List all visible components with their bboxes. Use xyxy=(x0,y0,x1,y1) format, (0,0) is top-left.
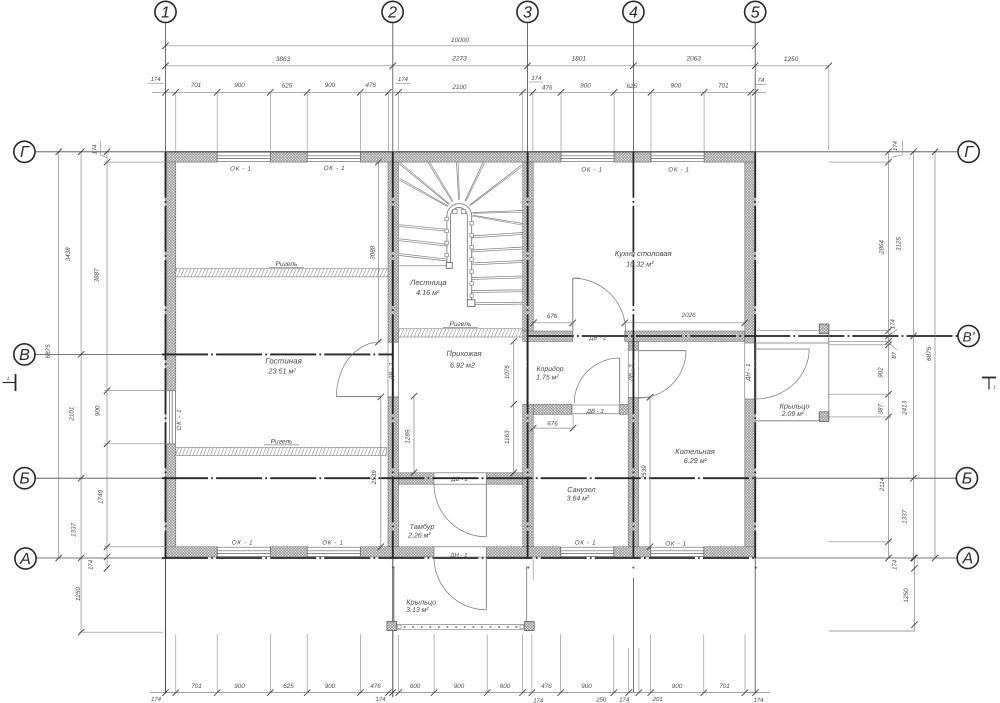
svg-text:ДВ - 2: ДВ - 2 xyxy=(450,476,469,483)
svg-text:6.29 м2: 6.29 м2 xyxy=(684,456,708,465)
svg-text:476: 476 xyxy=(370,683,381,690)
svg-text:2100: 2100 xyxy=(451,84,467,91)
svg-text:Кухня столовая: Кухня столовая xyxy=(615,249,672,258)
svg-text:174: 174 xyxy=(92,144,99,155)
svg-text:Г: Г xyxy=(20,144,30,161)
svg-text:ДВ - 3: ДВ - 3 xyxy=(586,408,605,415)
svg-text:900: 900 xyxy=(234,683,245,690)
svg-text:1076: 1076 xyxy=(504,365,511,380)
svg-text:В’: В’ xyxy=(963,329,976,344)
svg-text:ДН - 1: ДН - 1 xyxy=(745,364,752,382)
svg-text:3438: 3438 xyxy=(65,247,72,262)
svg-text:5: 5 xyxy=(751,4,760,21)
svg-text:676: 676 xyxy=(547,420,558,427)
svg-text:ДВ - 2: ДВ - 2 xyxy=(389,362,396,381)
svg-text:476: 476 xyxy=(542,84,553,91)
svg-text:387: 387 xyxy=(878,403,885,414)
svg-text:174: 174 xyxy=(891,559,898,570)
svg-text:2: 2 xyxy=(387,4,397,21)
svg-text:Крыльцо: Крыльцо xyxy=(780,401,810,410)
svg-text:2273: 2273 xyxy=(451,56,467,63)
svg-text:ОК - 1: ОК - 1 xyxy=(232,540,254,547)
svg-text:ОК - 1: ОК - 1 xyxy=(668,167,690,174)
svg-text:900: 900 xyxy=(95,405,102,416)
svg-text:701: 701 xyxy=(191,683,202,690)
svg-text:2.09 м2: 2.09 м2 xyxy=(781,410,805,418)
svg-text:Лестница: Лестница xyxy=(409,278,447,287)
svg-text:87: 87 xyxy=(891,351,898,358)
svg-text:1: 1 xyxy=(161,4,170,21)
svg-text:1337: 1337 xyxy=(71,523,78,538)
svg-text:Ригель: Ригель xyxy=(276,261,298,268)
svg-text:3887: 3887 xyxy=(94,268,101,283)
svg-text:4: 4 xyxy=(629,4,638,21)
svg-text:4.16 м2: 4.16 м2 xyxy=(416,288,440,297)
svg-text:250: 250 xyxy=(595,697,607,703)
svg-text:900: 900 xyxy=(325,82,336,89)
svg-text:10.32 м2: 10.32 м2 xyxy=(626,259,654,268)
svg-text:2026: 2026 xyxy=(681,312,697,319)
svg-text:1163: 1163 xyxy=(504,430,511,444)
svg-text:Тамбур: Тамбур xyxy=(409,522,434,531)
svg-text:Коридор: Коридор xyxy=(536,366,563,373)
svg-text:2864: 2864 xyxy=(879,240,886,256)
svg-text:2413: 2413 xyxy=(902,400,909,416)
svg-text:Прихожая: Прихожая xyxy=(446,349,481,358)
svg-text:3863: 3863 xyxy=(276,56,291,63)
svg-text:174: 174 xyxy=(533,698,544,703)
svg-text:174: 174 xyxy=(151,696,162,703)
svg-text:625: 625 xyxy=(627,83,638,90)
svg-text:676: 676 xyxy=(547,313,558,320)
svg-text:174: 174 xyxy=(88,559,95,570)
svg-text:ОК - 1: ОК - 1 xyxy=(665,540,687,547)
svg-text:Ригель: Ригель xyxy=(271,438,293,445)
svg-text:2063: 2063 xyxy=(685,56,701,63)
svg-text:ОК - 1: ОК - 1 xyxy=(230,166,252,173)
svg-text:625: 625 xyxy=(283,683,294,690)
svg-text:3125: 3125 xyxy=(896,237,903,252)
svg-text:3.64 м2: 3.64 м2 xyxy=(567,494,590,502)
svg-text:ОК - 1: ОК - 1 xyxy=(322,540,344,547)
svg-text:701: 701 xyxy=(719,683,730,690)
svg-text:Котельная: Котельная xyxy=(675,447,715,456)
svg-text:625: 625 xyxy=(282,82,293,89)
svg-text:1337: 1337 xyxy=(902,509,909,524)
svg-text:1: 1 xyxy=(7,376,10,382)
svg-text:902: 902 xyxy=(878,367,885,378)
svg-text:2539: 2539 xyxy=(371,470,378,486)
svg-text:1801: 1801 xyxy=(572,56,587,63)
svg-text:23.51 м2: 23.51 м2 xyxy=(267,367,296,376)
svg-text:201: 201 xyxy=(652,696,663,703)
svg-text:3088: 3088 xyxy=(369,245,376,260)
svg-text:А: А xyxy=(961,550,973,567)
svg-text:600: 600 xyxy=(410,683,421,690)
svg-text:900: 900 xyxy=(671,82,682,89)
svg-text:Б: Б xyxy=(19,471,29,488)
svg-text:Гостиная: Гостиная xyxy=(265,357,302,366)
svg-text:174: 174 xyxy=(531,75,542,82)
svg-text:701: 701 xyxy=(718,82,729,89)
svg-text:ДВ - 3: ДВ - 3 xyxy=(628,364,635,383)
svg-text:3.13 м2: 3.13 м2 xyxy=(406,606,429,614)
svg-text:1250: 1250 xyxy=(784,56,799,63)
svg-text:2101: 2101 xyxy=(69,407,76,422)
svg-text:600: 600 xyxy=(500,683,511,690)
svg-text:ДН - 1: ДН - 1 xyxy=(449,552,467,559)
svg-text:1250: 1250 xyxy=(75,587,82,602)
svg-text:ОК - 1: ОК - 1 xyxy=(575,539,597,546)
svg-text:900: 900 xyxy=(580,82,591,89)
svg-text:174: 174 xyxy=(890,318,897,329)
svg-text:1740: 1740 xyxy=(98,490,105,505)
svg-text:В: В xyxy=(19,347,30,364)
svg-text:2.26 м2: 2.26 м2 xyxy=(407,531,431,539)
svg-text:ОК - 1: ОК - 1 xyxy=(324,165,346,172)
svg-text:6.92 м2: 6.92 м2 xyxy=(450,360,475,369)
svg-text:900: 900 xyxy=(581,683,592,690)
svg-text:Г: Г xyxy=(964,144,974,161)
svg-text:174: 174 xyxy=(151,76,162,83)
svg-text:2539: 2539 xyxy=(641,465,648,481)
svg-text:Б: Б xyxy=(962,471,972,488)
svg-text:174: 174 xyxy=(619,697,630,703)
svg-text:1250: 1250 xyxy=(903,588,910,603)
svg-text:1: 1 xyxy=(993,385,996,391)
svg-text:174: 174 xyxy=(753,697,764,703)
svg-text:174: 174 xyxy=(892,140,899,151)
svg-text:174: 174 xyxy=(398,76,409,83)
svg-text:900: 900 xyxy=(234,82,245,89)
svg-text:900: 900 xyxy=(325,683,336,690)
svg-text:Крыльцо: Крыльцо xyxy=(406,598,436,607)
svg-text:900: 900 xyxy=(454,683,465,690)
svg-text:6875: 6875 xyxy=(45,344,52,359)
svg-text:174: 174 xyxy=(375,696,386,703)
svg-text:6875: 6875 xyxy=(926,347,933,362)
svg-text:Ригель: Ригель xyxy=(450,321,472,328)
svg-text:476: 476 xyxy=(541,683,552,690)
svg-text:ОК - 1: ОК - 1 xyxy=(581,167,603,174)
svg-text:2114: 2114 xyxy=(879,477,886,492)
svg-text:ОК - 1: ОК - 1 xyxy=(176,409,183,431)
svg-text:3: 3 xyxy=(523,4,532,21)
svg-text:1289: 1289 xyxy=(404,429,411,444)
svg-text:74: 74 xyxy=(758,77,765,84)
svg-text:900: 900 xyxy=(672,683,683,690)
svg-text:10000: 10000 xyxy=(451,37,469,44)
svg-text:476: 476 xyxy=(366,82,377,89)
svg-text:А: А xyxy=(19,551,31,568)
svg-text:1.75 м2: 1.75 м2 xyxy=(536,373,559,381)
svg-text:ДВ - 2: ДВ - 2 xyxy=(588,334,607,341)
svg-text:Санузел: Санузел xyxy=(567,485,595,494)
svg-text:701: 701 xyxy=(191,82,202,89)
